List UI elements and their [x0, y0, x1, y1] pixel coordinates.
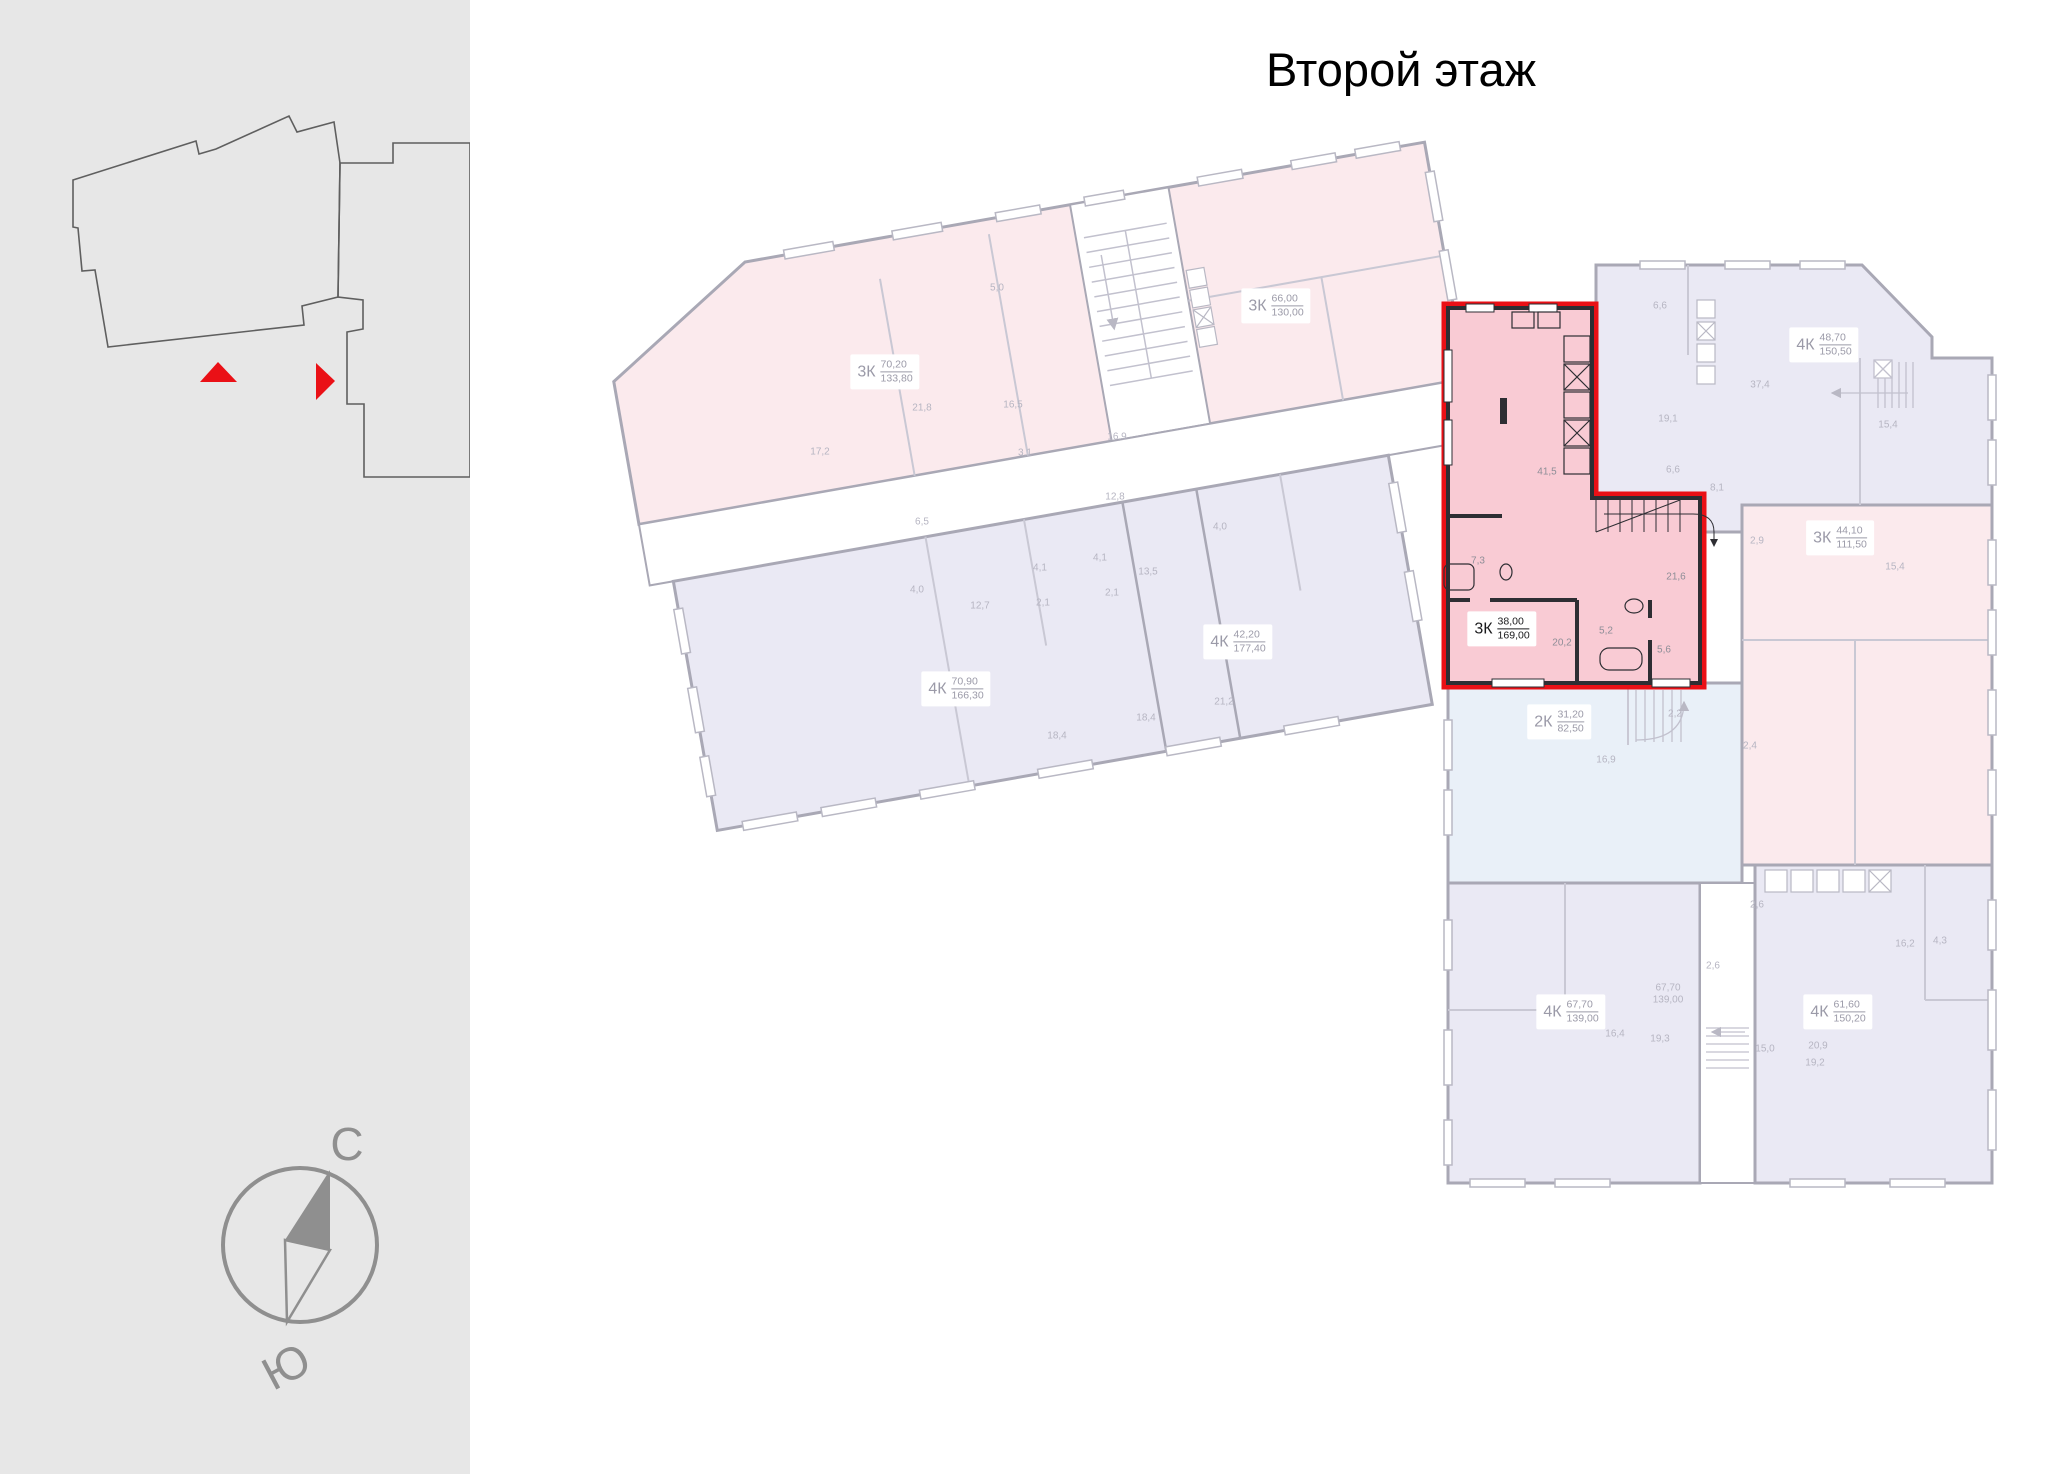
apartment-label-a8[interactable]: 2К31,2082,50: [1527, 704, 1591, 739]
apartment-label-a4[interactable]: 4К42,20177,40: [1203, 624, 1272, 659]
apartment-2k-3120-shape[interactable]: [1448, 683, 1742, 883]
living-area: 42,20: [1234, 628, 1266, 642]
living-area: 66,00: [1272, 292, 1304, 306]
apartment-4k-6770-shape[interactable]: [1448, 883, 1700, 1183]
apartment-type: 4К: [1810, 1004, 1828, 1020]
living-area: 70,20: [881, 358, 913, 372]
apartment-label-a6[interactable]: 4К48,70150,50: [1789, 327, 1858, 362]
apartment-4k-6160-shape[interactable]: [1755, 865, 1992, 1183]
apartment-type: 2К: [1534, 714, 1552, 730]
apartment-label-a9[interactable]: 4К67,70139,00: [1536, 994, 1605, 1029]
total-area: 82,50: [1557, 723, 1583, 736]
stair-core-right-building: [1700, 883, 1755, 1183]
apartment-areas: 66,00130,00: [1272, 292, 1304, 319]
living-area: 70,90: [952, 675, 984, 689]
apartment-type: 3К: [857, 364, 875, 380]
apartment-label-a5[interactable]: 3К38,00169,00: [1467, 611, 1536, 646]
total-area: 169,00: [1498, 630, 1530, 643]
apartment-areas: 44,10111,50: [1836, 524, 1867, 551]
apartment-label-a10[interactable]: 4К61,60150,20: [1803, 994, 1872, 1029]
apartment-label-a7[interactable]: 3К44,10111,50: [1806, 520, 1874, 555]
building-left: [596, 136, 1526, 839]
living-area: 31,20: [1557, 708, 1583, 722]
apartment-areas: 38,00169,00: [1498, 615, 1530, 642]
apartment-3k-4410-shape[interactable]: [1742, 505, 1992, 865]
total-area: 111,50: [1836, 539, 1867, 552]
apartment-label-a3[interactable]: 4К70,90166,30: [921, 671, 990, 706]
floor-plan-svg: [0, 0, 2048, 1474]
total-area: 177,40: [1234, 643, 1266, 656]
apartment-areas: 31,2082,50: [1557, 708, 1583, 735]
apartment-areas: 42,20177,40: [1234, 628, 1266, 655]
total-area: 139,00: [1567, 1013, 1599, 1026]
apartment-areas: 48,70150,50: [1820, 331, 1852, 358]
living-area: 67,70: [1567, 998, 1599, 1012]
apartment-label-a2[interactable]: 3К66,00130,00: [1241, 288, 1310, 323]
total-area: 150,20: [1834, 1013, 1866, 1026]
apartment-type: 4К: [1210, 634, 1228, 650]
apartment-label-a1[interactable]: 3К70,20133,80: [850, 354, 919, 389]
total-area: 150,50: [1820, 346, 1852, 359]
total-area: 130,00: [1272, 307, 1304, 320]
apartment-type: 4К: [1543, 1004, 1561, 1020]
apartment-type: 4К: [928, 681, 946, 697]
apartment-areas: 67,70139,00: [1567, 998, 1599, 1025]
apartment-type: 3К: [1248, 298, 1266, 314]
apartment-type: 3К: [1813, 530, 1831, 546]
apartment-areas: 70,20133,80: [881, 358, 913, 385]
living-area: 38,00: [1498, 615, 1530, 629]
apartment-areas: 61,60150,20: [1834, 998, 1866, 1025]
living-area: 44,10: [1836, 524, 1867, 538]
total-area: 166,30: [952, 690, 984, 703]
apartment-areas: 70,90166,30: [952, 675, 984, 702]
apartment-type: 4К: [1796, 337, 1814, 353]
apartment-type: 3К: [1474, 621, 1492, 637]
page: С Ю: [0, 0, 2048, 1474]
page-title: Второй этаж: [1266, 42, 1536, 97]
living-area: 61,60: [1834, 998, 1866, 1012]
living-area: 48,70: [1820, 331, 1852, 345]
selected-apartment-pillar: [1500, 398, 1507, 424]
total-area: 133,80: [881, 373, 913, 386]
